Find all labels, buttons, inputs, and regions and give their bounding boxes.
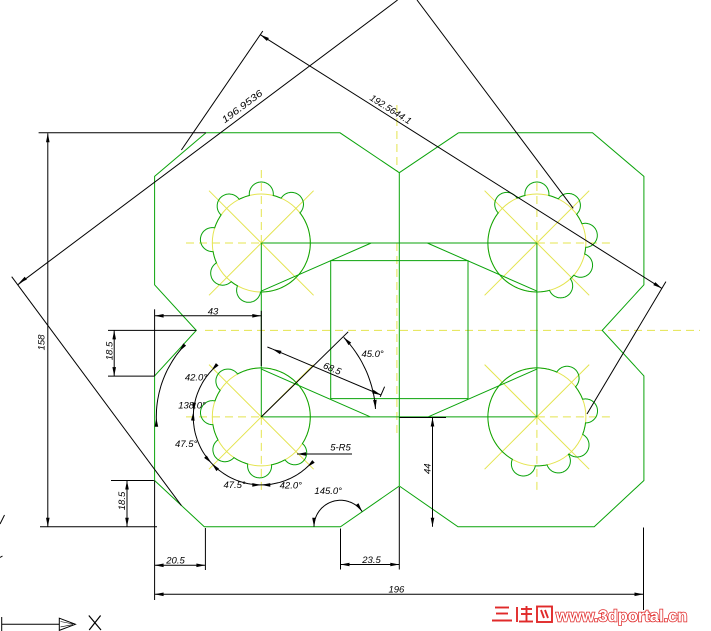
svg-text:18.5: 18.5: [117, 491, 128, 510]
svg-text:138.0°: 138.0°: [178, 401, 206, 412]
svg-text:47.5°: 47.5°: [223, 480, 245, 491]
svg-text:158: 158: [36, 334, 47, 351]
svg-text:42.0°: 42.0°: [185, 373, 207, 384]
svg-text:44: 44: [423, 463, 434, 474]
svg-text:20.5: 20.5: [165, 556, 185, 567]
svg-text:42.0°: 42.0°: [280, 481, 302, 492]
svg-text:196: 196: [388, 585, 405, 596]
svg-text:5-R5: 5-R5: [330, 443, 351, 454]
svg-text:145.0°: 145.0°: [314, 486, 342, 497]
svg-text:www.3dportal.cn: www.3dportal.cn: [555, 608, 687, 626]
svg-text:45.0°: 45.0°: [361, 349, 383, 360]
svg-text:23.5: 23.5: [361, 555, 381, 566]
svg-text:18.5: 18.5: [104, 341, 115, 360]
svg-text:43: 43: [208, 306, 219, 317]
svg-text:47.5°: 47.5°: [175, 439, 197, 450]
